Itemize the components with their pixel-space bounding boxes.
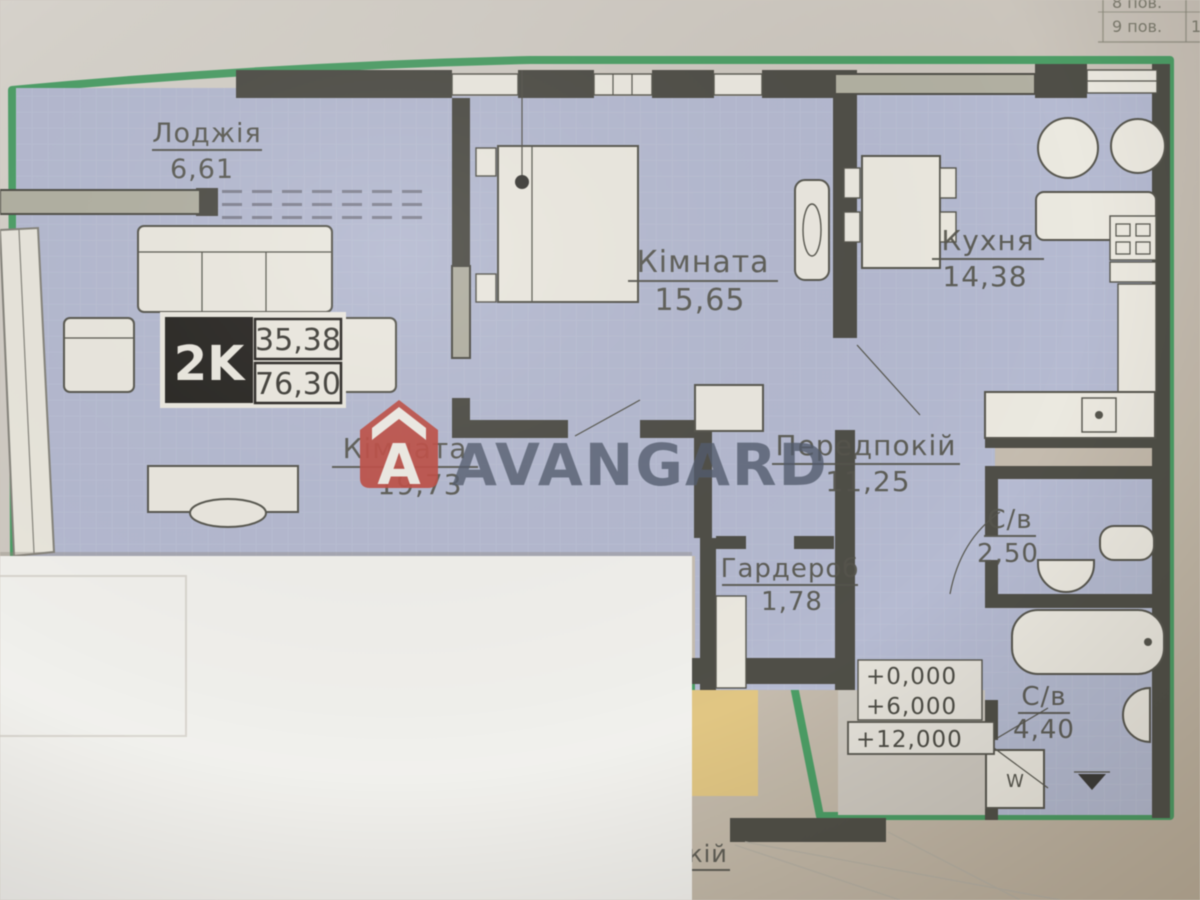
dining-table-icon — [862, 156, 940, 268]
dresser-icon — [695, 385, 763, 431]
window-icon — [714, 74, 762, 95]
adjacent-yellow-area — [692, 690, 758, 796]
toilet-icon — [1100, 526, 1154, 560]
counter-strip-icon — [1118, 284, 1156, 392]
faucet-icon — [1095, 411, 1103, 419]
armchair-icon — [64, 318, 134, 392]
area-living-value: 35,38 — [255, 323, 341, 358]
sofa-icon — [138, 226, 332, 312]
room-area: 6,61 — [170, 154, 234, 185]
room-name: Лоджія — [152, 118, 262, 149]
white-overlay-card — [0, 552, 692, 900]
room-area: 15,65 — [655, 283, 746, 318]
corner-table-row1: 8 пов. — [1112, 0, 1162, 12]
watermark-text: AVANGARD — [452, 431, 829, 499]
floor-plan-photo: W +0,000 +6,000 +12,000 Лоджія 6,61 Кімн… — [0, 0, 1200, 900]
appliance-icon — [1110, 262, 1156, 282]
elevation-12000: +12,000 — [856, 727, 963, 753]
room-name: С/в — [1021, 682, 1066, 712]
room-name: Кімната — [636, 245, 769, 280]
room-area: 1,78 — [761, 587, 823, 617]
room-name: Гардероб — [721, 554, 860, 584]
bedroom-left-wall-light — [452, 266, 470, 358]
sink-basin-icon — [1038, 118, 1098, 178]
lower-counter-icon — [985, 392, 1155, 438]
nightstand-icon — [476, 148, 496, 176]
elevation-6000: +6,000 — [866, 694, 957, 720]
tub-faucet-icon — [1144, 638, 1152, 646]
chair-icon — [844, 212, 860, 242]
kitchen-top-wall — [835, 74, 1035, 94]
room-area: 2,50 — [977, 539, 1039, 569]
room-name: кій — [688, 840, 728, 868]
room-name: С/в — [987, 505, 1032, 535]
room-label-bath-big: С/в 4,40 — [1013, 682, 1075, 745]
unit-badge: 2K 35,38 76,30 — [160, 312, 346, 408]
pendant-light-icon — [515, 175, 529, 189]
nightstand-icon — [476, 274, 496, 302]
area-total-value: 76,30 — [255, 367, 341, 402]
wardrobe-shelf-icon — [716, 596, 746, 688]
window-icon — [594, 74, 652, 95]
corner-table-row2-right: 1 — [1191, 17, 1200, 36]
loggia-divider-wall — [0, 190, 200, 214]
room-name: Кухня — [941, 224, 1034, 257]
chair-icon — [940, 168, 956, 198]
unit-type-label: 2K — [174, 336, 246, 392]
bathtub-icon — [1012, 610, 1164, 674]
corner-table-row2: 9 пов. — [1112, 17, 1162, 36]
room-area: 14,38 — [942, 260, 1027, 293]
table-decor-icon — [190, 499, 266, 527]
room-area: 11,25 — [825, 465, 910, 498]
card-body — [0, 556, 692, 900]
room-label-partial: кій — [688, 840, 730, 870]
room-area: 4,40 — [1013, 715, 1075, 745]
washing-machine-label: W — [1006, 771, 1024, 792]
window-icon — [452, 74, 518, 95]
door-handle-icon — [803, 204, 821, 256]
logo-letter: A — [377, 433, 421, 498]
chair-icon — [844, 168, 860, 198]
elevation-0: +0,000 — [866, 664, 957, 690]
room-label-kitchen: Кухня 14,38 — [932, 224, 1044, 293]
sink-basin-icon — [1111, 119, 1165, 173]
bed-icon — [498, 146, 638, 302]
